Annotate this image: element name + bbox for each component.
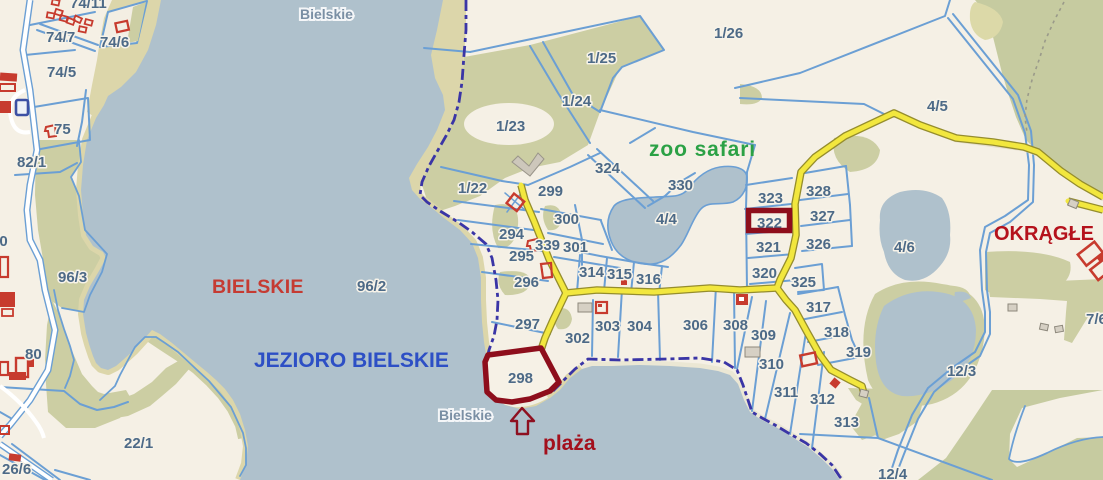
svg-text:4/6: 4/6 — [894, 239, 915, 256]
svg-text:308: 308 — [723, 317, 748, 334]
svg-text:BIELSKIE: BIELSKIE — [212, 276, 304, 298]
svg-text:294: 294 — [499, 226, 525, 243]
svg-text:1/22: 1/22 — [458, 180, 487, 197]
svg-text:302: 302 — [565, 330, 590, 347]
svg-text:301: 301 — [563, 239, 588, 256]
svg-text:96/3: 96/3 — [58, 269, 87, 286]
svg-text:1/23: 1/23 — [496, 118, 525, 135]
svg-text:90: 90 — [0, 233, 8, 250]
svg-text:zoo safari: zoo safari — [649, 138, 756, 161]
svg-text:310: 310 — [759, 356, 784, 373]
svg-text:12/3: 12/3 — [947, 363, 976, 380]
svg-text:314: 314 — [579, 264, 605, 281]
svg-text:325: 325 — [791, 274, 816, 291]
svg-text:321: 321 — [756, 239, 781, 256]
svg-text:296: 296 — [514, 274, 539, 291]
svg-text:Bielskie: Bielskie — [300, 6, 353, 22]
svg-text:311: 311 — [774, 384, 798, 401]
svg-text:320: 320 — [752, 265, 777, 282]
svg-text:317: 317 — [806, 299, 831, 316]
svg-text:312: 312 — [810, 391, 835, 408]
svg-text:309: 309 — [751, 327, 776, 344]
svg-text:299: 299 — [538, 183, 563, 200]
svg-text:OKRĄGŁE: OKRĄGŁE — [994, 223, 1094, 245]
svg-text:316: 316 — [636, 271, 661, 288]
svg-text:12/4: 12/4 — [878, 466, 908, 480]
svg-text:7/6: 7/6 — [1086, 311, 1103, 328]
svg-text:328: 328 — [806, 183, 831, 200]
svg-text:plaża: plaża — [543, 432, 596, 455]
svg-text:1/25: 1/25 — [587, 50, 616, 67]
svg-text:297: 297 — [515, 316, 540, 333]
svg-text:327: 327 — [810, 208, 835, 225]
svg-text:26/6: 26/6 — [2, 461, 31, 478]
svg-text:74/5: 74/5 — [47, 64, 76, 81]
svg-text:339: 339 — [535, 237, 560, 254]
svg-text:22/1: 22/1 — [124, 435, 153, 452]
svg-text:323: 323 — [758, 190, 783, 207]
svg-text:74/7: 74/7 — [46, 29, 75, 46]
svg-text:74/6: 74/6 — [100, 34, 129, 51]
svg-text:306: 306 — [683, 317, 708, 334]
svg-text:326: 326 — [806, 236, 831, 253]
svg-text:295: 295 — [509, 248, 534, 265]
svg-text:74/11: 74/11 — [70, 0, 107, 12]
svg-text:298: 298 — [508, 370, 533, 387]
svg-text:96/2: 96/2 — [357, 278, 386, 295]
svg-text:4/5: 4/5 — [927, 98, 948, 115]
svg-text:324: 324 — [595, 160, 621, 177]
svg-text:313: 313 — [834, 414, 859, 431]
svg-text:300: 300 — [554, 211, 579, 228]
svg-text:JEZIORO BIELSKIE: JEZIORO BIELSKIE — [254, 349, 449, 372]
svg-text:75: 75 — [54, 121, 71, 138]
svg-text:4/4: 4/4 — [656, 211, 678, 228]
svg-text:80: 80 — [25, 346, 42, 363]
svg-text:Bielskie: Bielskie — [439, 407, 492, 423]
svg-text:82/1: 82/1 — [17, 154, 46, 171]
svg-text:1/24: 1/24 — [562, 93, 592, 110]
svg-text:318: 318 — [824, 324, 849, 341]
svg-text:1/26: 1/26 — [714, 25, 743, 42]
svg-text:315: 315 — [607, 266, 632, 283]
svg-text:303: 303 — [595, 318, 620, 335]
svg-text:330: 330 — [668, 177, 693, 194]
svg-text:304: 304 — [627, 318, 653, 335]
svg-text:319: 319 — [846, 344, 871, 361]
